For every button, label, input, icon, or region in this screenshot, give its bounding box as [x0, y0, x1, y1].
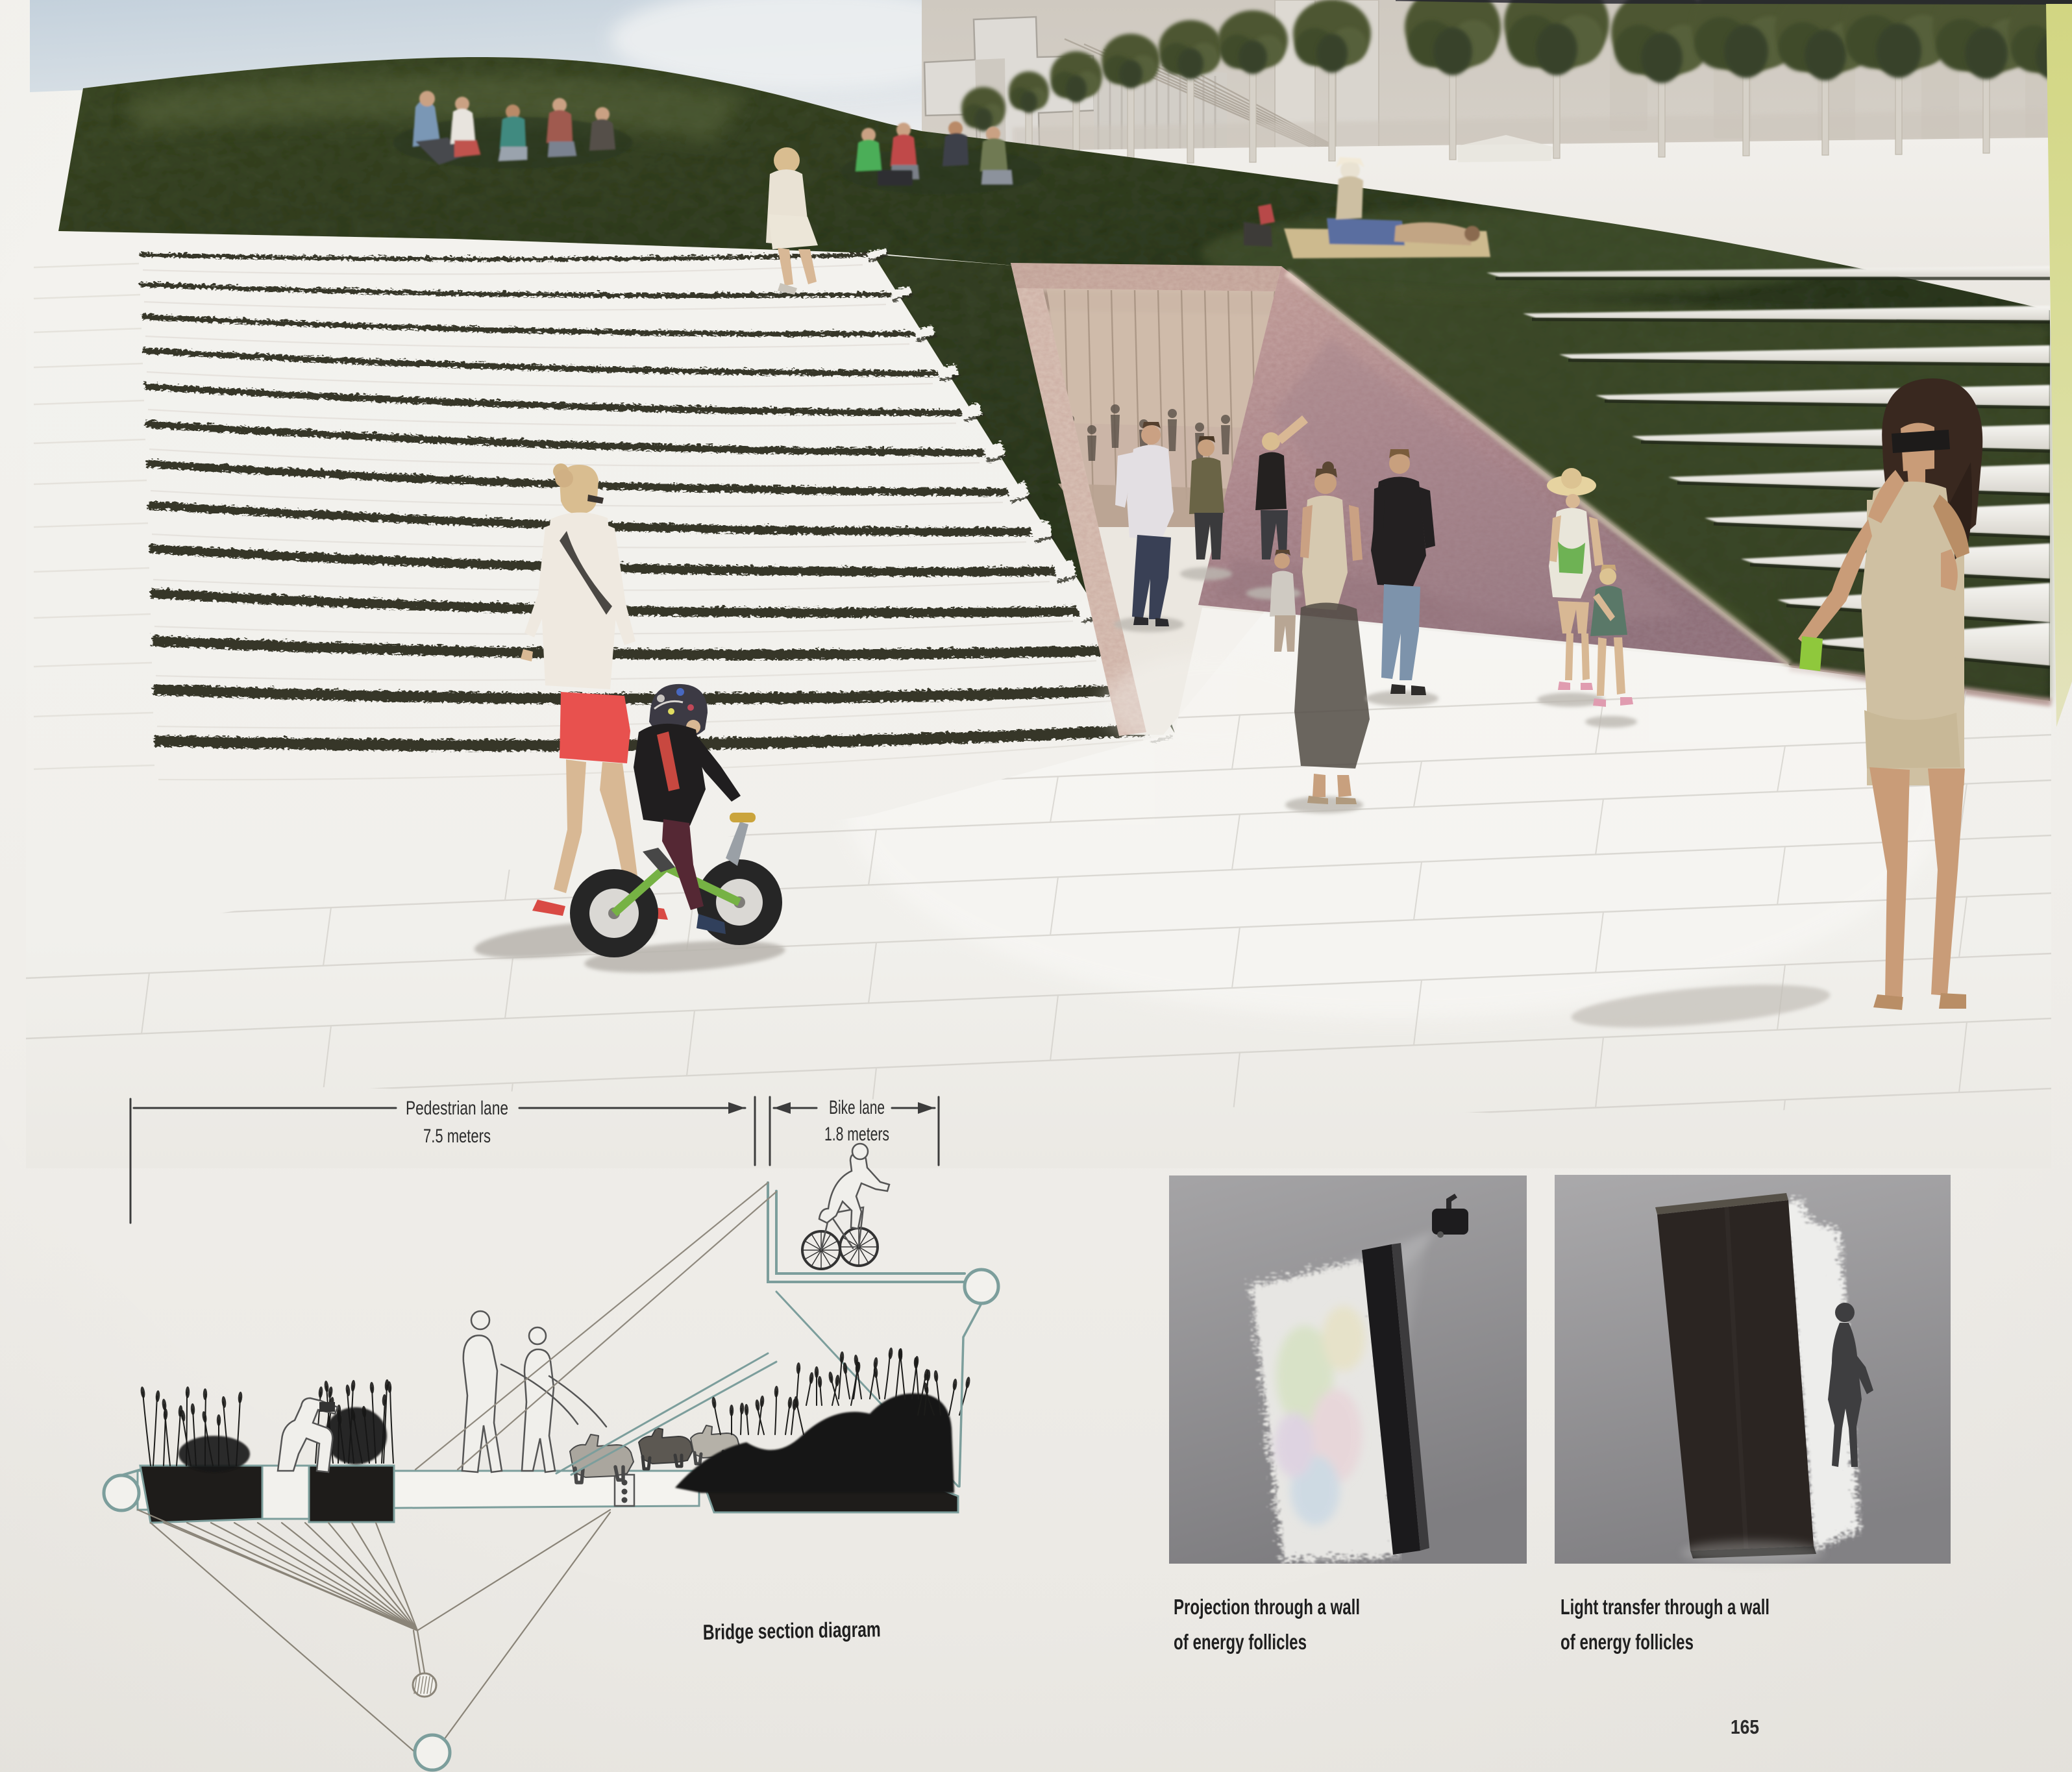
svg-text:Projection through a wall: Projection through a wall: [1174, 1595, 1360, 1619]
svg-text:Pedestrian lane: Pedestrian lane: [406, 1098, 508, 1119]
svg-text:of energy follicles: of energy follicles: [1560, 1630, 1694, 1654]
svg-text:Light transfer through a wall: Light transfer through a wall: [1560, 1595, 1770, 1619]
svg-text:1.8 meters: 1.8 meters: [824, 1124, 889, 1145]
svg-text:of energy follicles: of energy follicles: [1174, 1630, 1307, 1654]
svg-text:165: 165: [1731, 1716, 1759, 1738]
svg-text:Bridge section diagram: Bridge section diagram: [702, 1617, 881, 1644]
svg-text:7.5 meters: 7.5 meters: [423, 1126, 491, 1147]
svg-text:Bike lane: Bike lane: [829, 1097, 885, 1118]
